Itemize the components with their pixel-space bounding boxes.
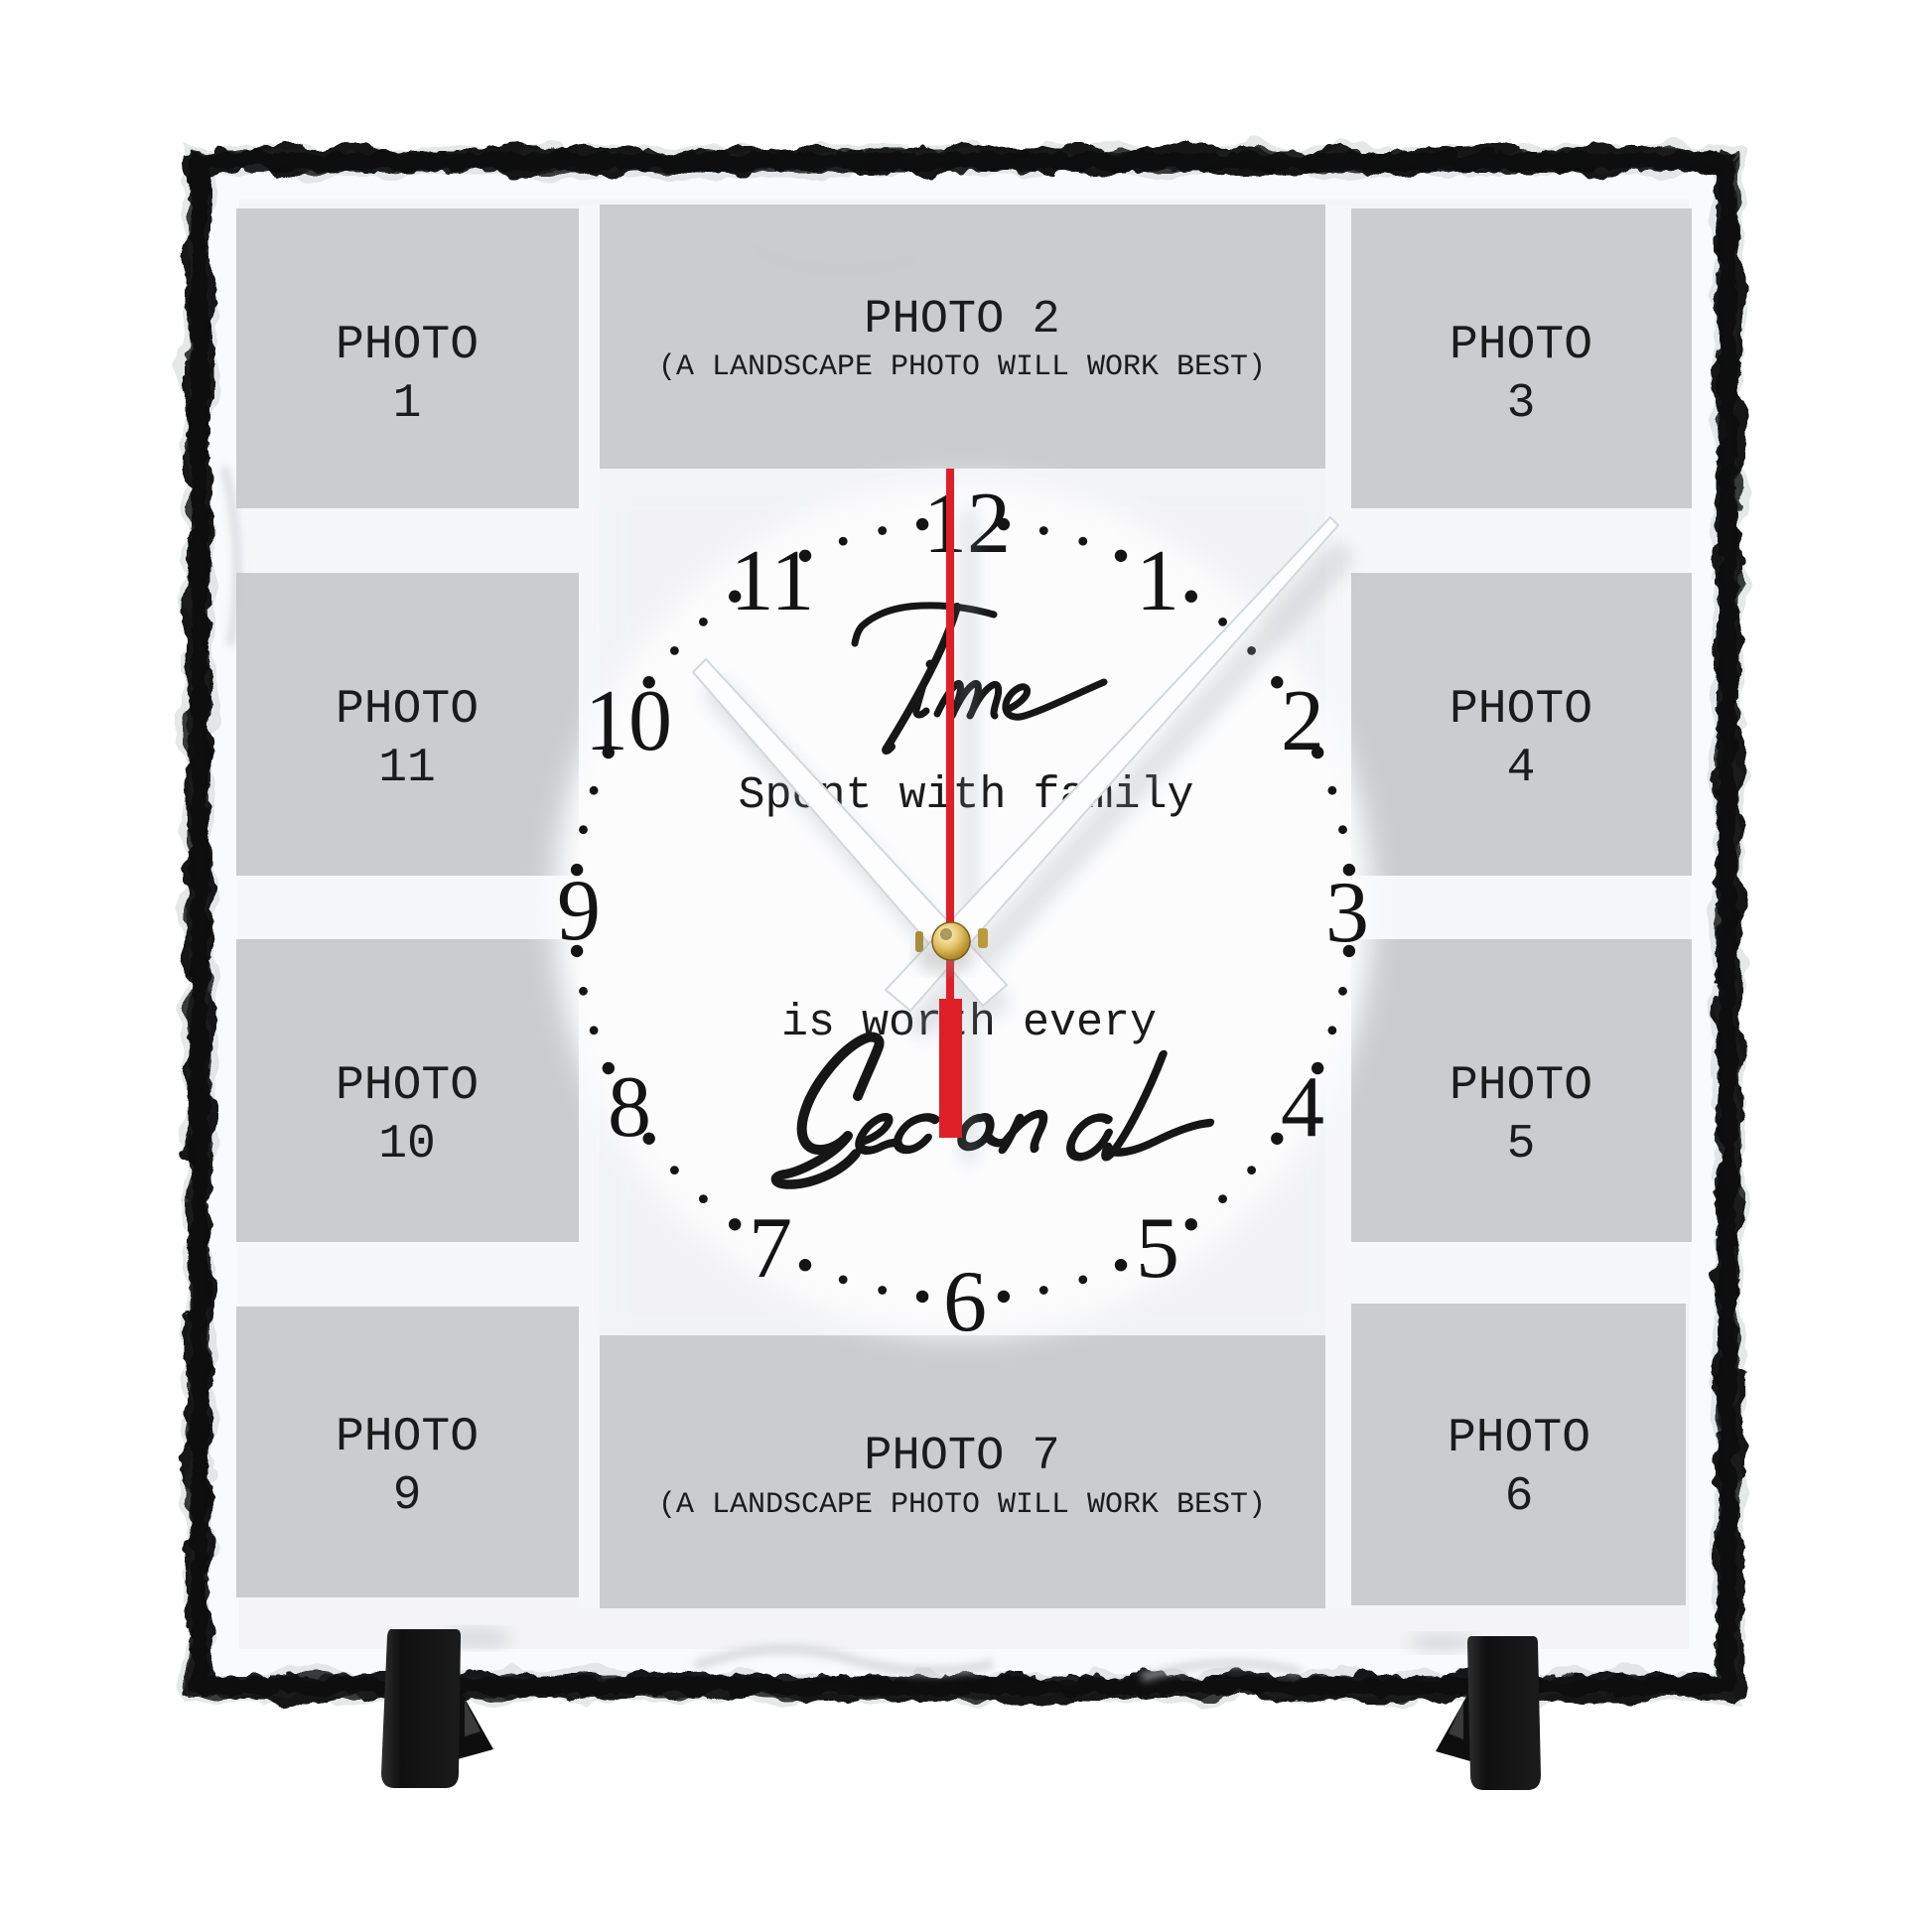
svg-text:10: 10 (585, 673, 672, 769)
svg-text:3: 3 (1507, 377, 1536, 431)
svg-text:PHOTO: PHOTO (1449, 683, 1592, 737)
svg-text:PHOTO: PHOTO (336, 1059, 479, 1113)
svg-text:PHOTO: PHOTO (1449, 319, 1592, 372)
svg-text:5: 5 (1136, 1200, 1179, 1297)
svg-text:(A LANDSCAPE PHOTO WILL WORK B: (A LANDSCAPE PHOTO WILL WORK BEST) (658, 350, 1266, 384)
svg-text:PHOTO: PHOTO (1449, 1059, 1592, 1113)
svg-text:PHOTO 7: PHOTO 7 (864, 1431, 1059, 1483)
svg-text:6: 6 (1505, 1470, 1534, 1524)
svg-text:2: 2 (1281, 673, 1324, 769)
svg-text:1: 1 (393, 377, 422, 431)
svg-text:7: 7 (749, 1200, 792, 1297)
svg-text:4: 4 (1507, 742, 1536, 795)
svg-text:4: 4 (1281, 1059, 1324, 1156)
svg-text:10: 10 (378, 1118, 436, 1172)
svg-text:9: 9 (393, 1469, 422, 1523)
svg-text:11: 11 (378, 742, 436, 795)
svg-text:(A LANDSCAPE PHOTO WILL WORK B: (A LANDSCAPE PHOTO WILL WORK BEST) (658, 1488, 1266, 1522)
svg-text:8: 8 (608, 1059, 651, 1156)
svg-text:PHOTO: PHOTO (1448, 1412, 1590, 1465)
svg-text:PHOTO: PHOTO (336, 683, 479, 737)
svg-text:11: 11 (731, 533, 815, 629)
svg-text:PHOTO: PHOTO (336, 1411, 479, 1464)
svg-text:3: 3 (1325, 865, 1369, 961)
svg-text:5: 5 (1507, 1118, 1536, 1172)
svg-text:6: 6 (943, 1254, 987, 1350)
svg-text:PHOTO: PHOTO (336, 319, 479, 372)
svg-text:PHOTO 2: PHOTO 2 (864, 294, 1059, 346)
svg-text:9: 9 (557, 863, 601, 959)
svg-text:1: 1 (1136, 533, 1179, 629)
